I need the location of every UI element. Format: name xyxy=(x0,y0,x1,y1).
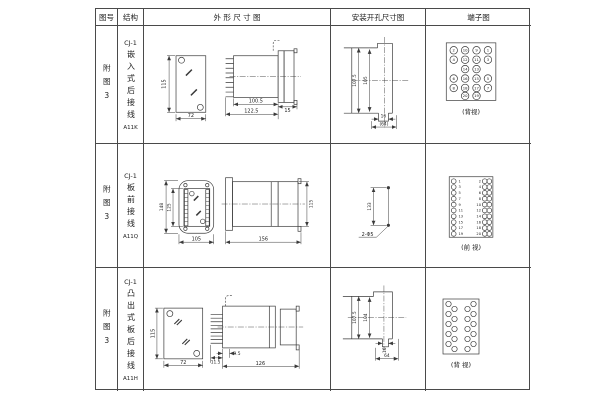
pin-number: 11 xyxy=(474,58,479,62)
pin-number: 18 xyxy=(463,86,468,90)
side-view: 100.5 15 122.5 xyxy=(226,40,301,119)
pin-number: 20 xyxy=(463,94,468,98)
pin-number: 9 xyxy=(458,203,461,207)
front-view: 115 72 xyxy=(150,308,202,368)
terminal-pins xyxy=(446,301,476,351)
structure-cell-row1: CJ-1 嵌入式后接线 A11K xyxy=(118,26,144,144)
pin-number: 16 xyxy=(476,220,481,224)
pin-number: 1 xyxy=(487,49,490,53)
front-view: 115 72 xyxy=(162,56,206,121)
pin-number: 17 xyxy=(474,86,479,90)
type-code: A11Q xyxy=(123,234,138,240)
pin-number: 4 xyxy=(479,185,482,189)
pin-number: 17 xyxy=(458,226,463,230)
dim-front-width: 72 xyxy=(188,113,194,119)
structure-label: 凸出式板后接线 xyxy=(127,289,135,373)
type-code: A11K xyxy=(123,125,137,131)
mounting-cell-row3: 107.5 104 16 64 xyxy=(331,268,426,391)
header-terminal: 端子图 xyxy=(426,9,531,26)
pin-number: 2 xyxy=(479,179,481,183)
dim-front-height: 148 xyxy=(159,203,165,212)
dim-mount-slot: 16 xyxy=(382,347,388,353)
dim-mount-inner: 104 xyxy=(363,313,369,322)
pin-number: 5 xyxy=(458,191,460,195)
pin-number: 14 xyxy=(476,215,481,219)
pin-number: 5 xyxy=(487,77,490,81)
pin-number: 14 xyxy=(463,67,468,71)
cutout-dimensions: 107.5 104 16 64 xyxy=(352,296,398,360)
figure-cell-row2: 附图3 xyxy=(96,144,118,268)
figure-label: 附图3 xyxy=(103,64,111,106)
outline-cell-row2: 148 125 105 156 xyxy=(144,144,331,268)
pin-number: 7 xyxy=(487,86,490,90)
dim-hole-span: 133 xyxy=(367,202,373,211)
dim-mount-overall: (64) xyxy=(379,121,388,127)
dim-front-width: 105 xyxy=(192,237,201,243)
terminal-cell-row3: (背 视) xyxy=(426,268,531,391)
page: 图号 结构 外 形 尺 寸 图 安装开孔尺寸图 端子图 附图3 CJ-1 嵌入式… xyxy=(0,0,600,400)
terminal-drawing-a11h: (背 视) xyxy=(426,268,531,391)
dim-front-height: 115 xyxy=(150,329,156,338)
structure-label: 板前接线 xyxy=(127,183,135,231)
mounting-drawing-a11h: 107.5 104 16 64 xyxy=(331,268,425,391)
header-mounting: 安装开孔尺寸图 xyxy=(331,9,426,26)
structure-cell-row3: CJ-1 凸出式板后接线 A11H xyxy=(118,268,144,391)
dim-side-length: 156 xyxy=(259,237,268,243)
figure-label: 附图3 xyxy=(103,309,111,351)
pin-number: 9 xyxy=(475,49,478,53)
outline-drawing-a11k: 115 72 100.5 xyxy=(144,26,330,143)
dim-mount-slot: 16 xyxy=(381,113,387,119)
view-label: (背 视) xyxy=(451,360,471,369)
pin-number: 13 xyxy=(474,67,479,71)
outline-drawing-a11q: 148 125 105 156 xyxy=(144,144,330,267)
pin-number: 11 xyxy=(458,209,463,213)
pin-number: 1 xyxy=(458,179,460,183)
terminal-drawing-a11k: 2 10 9 1 4 12 11 3 14 13 6 16 15 5 xyxy=(426,26,531,143)
pin-number: 13 xyxy=(458,215,463,219)
dim-pin-depth: 11.5 xyxy=(211,360,221,366)
dim-mount-outer: 107.5 xyxy=(352,311,358,324)
pin-number: 12 xyxy=(476,209,481,213)
pin-number: 3 xyxy=(487,58,490,62)
terminal-pins: 2 10 9 1 4 12 11 3 14 13 6 16 15 5 xyxy=(450,47,492,100)
dim-mount-outer: 107.5 xyxy=(352,74,358,87)
dim-front-height: 115 xyxy=(162,79,168,88)
mounting-drawing-a11q: 133 2-Φ5 xyxy=(331,144,425,267)
dim-mount-inner: 105 xyxy=(363,76,369,85)
dim-mount-overall: 64 xyxy=(384,353,390,359)
outline-drawing-a11h: 115 72 9.5 xyxy=(144,268,330,391)
mounting-drawing-a11k: 107.5 105 16 (64) xyxy=(331,26,425,143)
dim-side-inner: 100.5 xyxy=(249,99,263,105)
dim-side-length: 126 xyxy=(256,361,265,367)
terminal-drawing-a11q: 1 2 3 4 5 6 7 8 9 10 11 12 xyxy=(426,144,531,267)
pin-number: 8 xyxy=(453,86,456,90)
pin-number: 10 xyxy=(463,49,468,53)
pin-number: 12 xyxy=(463,58,468,62)
header-structure: 结构 xyxy=(118,9,144,26)
side-view: 9.5 11.5 126 xyxy=(211,296,304,369)
pin-number: 15 xyxy=(474,77,479,81)
model-label: CJ-1 xyxy=(124,172,137,180)
model-label: CJ-1 xyxy=(124,278,137,286)
mount-holes: 133 2-Φ5 xyxy=(359,186,390,238)
pin-number: 7 xyxy=(458,197,460,201)
pin-number: 16 xyxy=(463,77,468,81)
terminal-pins: 1 2 3 4 5 6 7 8 9 10 11 12 xyxy=(451,179,491,236)
outline-cell-row1: 115 72 100.5 xyxy=(144,26,331,144)
dim-front-width: 72 xyxy=(180,360,186,366)
dim-side-outer: 122.5 xyxy=(244,109,258,115)
view-label: (背视) xyxy=(462,107,480,116)
hole-spec-label: 2-Φ5 xyxy=(362,232,374,238)
figure-cell-row3: 附图3 xyxy=(96,268,118,391)
dim-cap: 15 xyxy=(284,108,290,114)
pin-number: 15 xyxy=(458,220,463,224)
cutout-dimensions: 107.5 105 16 (64) xyxy=(352,48,396,129)
pin-number: 6 xyxy=(479,191,482,195)
terminal-cell-row1: 2 10 9 1 4 12 11 3 14 13 6 16 15 5 xyxy=(426,26,531,144)
mounting-cell-row1: 107.5 105 16 (64) xyxy=(331,26,426,144)
pin-number: 2 xyxy=(453,49,456,53)
pin-number: 3 xyxy=(458,185,460,189)
structure-label: 嵌入式后接线 xyxy=(127,50,135,122)
pin-number: 19 xyxy=(458,232,463,236)
figure-label: 附图3 xyxy=(103,185,111,227)
pin-number: 6 xyxy=(453,77,456,81)
pin-number: 10 xyxy=(476,203,481,207)
terminal-cell-row2: 1 2 3 4 5 6 7 8 9 10 11 12 xyxy=(426,144,531,268)
model-label: CJ-1 xyxy=(124,39,137,47)
type-code: A11H xyxy=(123,376,138,382)
outline-cell-row3: 115 72 9.5 xyxy=(144,268,331,391)
pin-number: 19 xyxy=(474,94,479,98)
side-view: 156 115 xyxy=(222,178,315,244)
pin-number: 8 xyxy=(479,197,482,201)
pin-number: 20 xyxy=(476,232,481,236)
dim-offset: 9.5 xyxy=(234,351,241,357)
structure-cell-row2: CJ-1 板前接线 A11Q xyxy=(118,144,144,268)
dim-front-inner: 125 xyxy=(167,203,173,212)
view-label: (前 视) xyxy=(461,243,481,252)
mounting-cell-row2: 133 2-Φ5 xyxy=(331,144,426,268)
spec-table: 图号 结构 外 形 尺 寸 图 安装开孔尺寸图 端子图 附图3 CJ-1 嵌入式… xyxy=(95,8,530,390)
header-outline: 外 形 尺 寸 图 xyxy=(144,9,331,26)
figure-cell-row1: 附图3 xyxy=(96,26,118,144)
pin-number: 4 xyxy=(453,58,456,62)
header-figure: 图号 xyxy=(96,9,118,26)
pin-number: 18 xyxy=(476,226,481,230)
front-view: 148 125 105 xyxy=(159,181,214,244)
dim-side-height: 115 xyxy=(308,200,314,209)
